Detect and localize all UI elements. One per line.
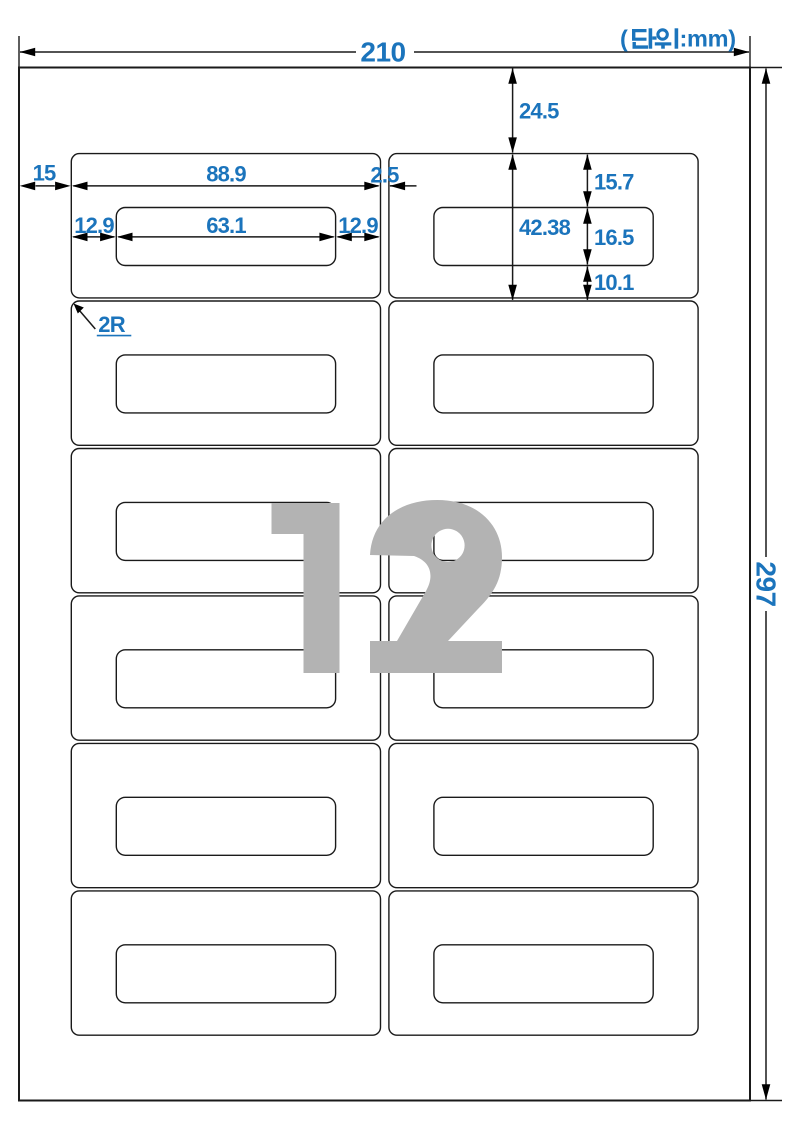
svg-text:2R: 2R [98, 312, 125, 337]
svg-text:15: 15 [33, 161, 56, 186]
svg-text:42.38: 42.38 [519, 215, 571, 240]
svg-text:24.5: 24.5 [519, 99, 559, 124]
svg-text:16.5: 16.5 [594, 225, 634, 250]
svg-text:12.9: 12.9 [338, 213, 378, 238]
svg-text:10.1: 10.1 [594, 270, 634, 295]
svg-text:15.7: 15.7 [594, 170, 634, 195]
svg-text:(: ( [620, 26, 628, 52]
svg-text:2.5: 2.5 [370, 163, 399, 188]
svg-text:63.1: 63.1 [206, 213, 246, 238]
svg-text:210: 210 [360, 37, 405, 68]
svg-text:297: 297 [751, 561, 782, 606]
svg-text:88.9: 88.9 [206, 162, 246, 187]
svg-text:12.9: 12.9 [74, 213, 114, 238]
svg-text::mm): :mm) [680, 26, 736, 52]
